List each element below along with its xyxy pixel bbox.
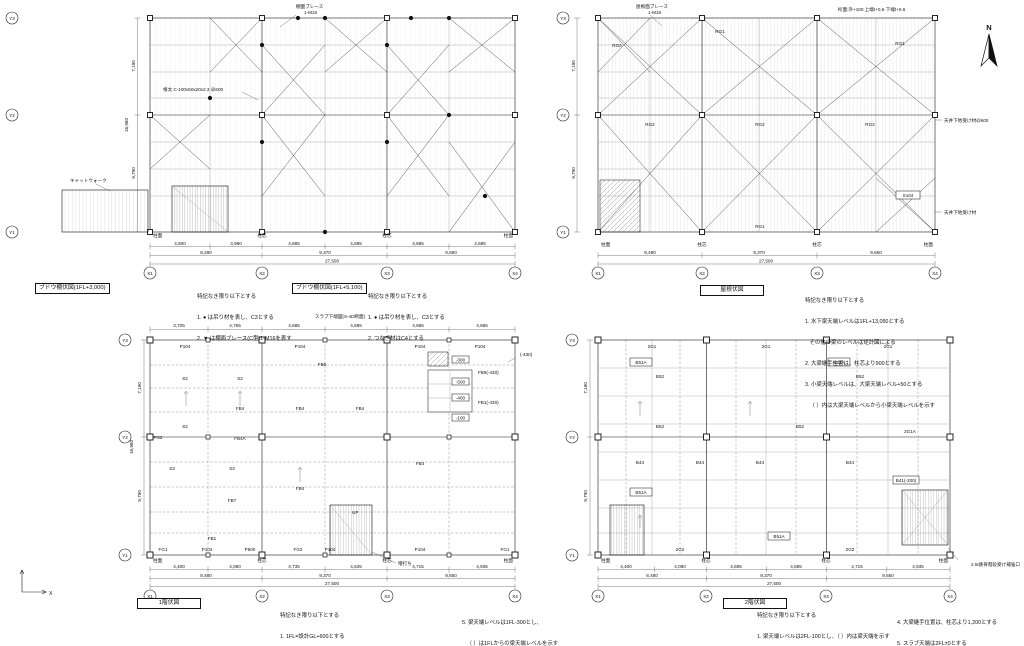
dim-value: 4,685 [790,564,802,569]
grid-bubble-label: X2 [703,594,709,599]
stair-hatch [600,180,640,232]
dim-total: 27,500 [325,581,339,586]
col-center-label: 柱芯 [382,232,392,239]
note-line: 5. スラブ天端は2FL±0とする [897,641,1024,646]
dim-value: 9,790 [137,490,142,502]
dim-value: 4,685 [412,241,424,246]
stair-reinforce-callout: 2.5t鉄骨階段受け補強口 [948,548,1020,568]
col-center-label: 柱芯 [812,241,822,248]
beam-callout: B51A [773,534,785,539]
north-label: N [986,23,991,32]
dim-value: 9,370 [760,573,772,578]
notes-roof: 特記なき限り以下とする 1. 水下梁天端レベルは1FL+13,050とする その… [805,284,935,417]
dim-value: 7,190 [131,60,136,72]
stair-hatch [172,186,228,232]
grid-bubble-label: X3 [384,271,390,276]
beam-label: 2G1 [648,344,657,349]
title-roof: 屋根伏図 [700,285,764,296]
dimension-strings-bottom: 柱面 柱芯 柱芯 柱面 4,500 3,980 4,685 4,685 4,68… [150,232,515,267]
notes-floor1-a: 特記なき限り以下とする 1. 1FL=設計GL+600とする 2. スラブ符号は… [280,599,394,646]
col-center-label: 柱芯 [257,232,267,239]
dim-value: 4,080 [229,564,241,569]
grid-bubble-label: X3 [814,271,820,276]
note-line: その他の梁のレベルは矩計図による [805,340,935,347]
dim-value: 4,935 [476,564,488,569]
dim-value: 9,790 [131,167,136,179]
beam-label: RG3 [612,43,622,48]
note-line: 4. 大梁継手位置は、柱芯より1,200とする [897,620,1024,627]
brace-size-label: 1-M16 [304,10,317,15]
beam-label: FG1 [159,547,168,552]
beam-label: B44 [846,460,855,465]
catwalk-label: キャットウォーク [70,177,107,184]
grid-bubble-label: X1 [595,271,601,276]
col-center-label: 柱芯 [821,557,831,564]
stair-hatch [902,490,948,545]
dim-value: 8,480 [644,250,656,255]
dimension-strings-bottom: 柱面 柱芯 柱芯 柱面 8,480 9,370 9,650 27,500 [598,241,935,267]
note-line: 5. 梁天端レベルは1FL-300とし、 [462,620,558,627]
note-line: 3. 小梁天端レベルは、大梁天端レベル+50とする [805,382,935,389]
notes-floor2-a: 特記なき限り以下とする 1. 梁天端レベルは2FL-100とし、（ ）内は梁天端… [757,599,890,646]
plan-floor2: 2G1 2G1 2G1 B52 B52 B52 B52 B44 B44 B44 … [566,334,1020,602]
ceiling-label: 天井下地受け材 [944,209,977,216]
col-center-label: 柱芯 [697,241,707,248]
grid-bubble-label: X2 [259,594,265,599]
level-callout: -300 [456,358,466,363]
pile-label: P500 [245,547,256,552]
notes-floor1-b: 5. 梁天端レベルは1FL-300とし、 （ ）は1FLからの梁天端レベルを示す… [462,606,558,646]
grid-bubble-label: Y2 [569,435,575,440]
brace-label: 棚面ブレース [296,3,324,10]
ceiling-label: 天井下地受け材@600 [944,117,989,124]
notes-head: 特記なき限り以下とする [757,613,890,620]
dim-value: 4,715 [412,564,424,569]
dimension-strings-bottom: 柱面 柱芯 柱芯 柱面 増打ち 4,400 4,080 4,735 4,635 … [150,552,515,590]
note-line: 1. ● は吊り材を表し、C3とする [368,315,445,322]
notes-head: 特記なき限り以下とする [280,613,394,620]
col-face-label: 柱面 [504,232,514,239]
beam-label: FB4 [356,406,365,411]
dim-value: 4,685 [474,241,486,246]
slab-label: S3 [229,466,235,471]
plan-floor1: S2 S2 S2 S3 S3 FB4 FB4 FB4 FB4 FB4 FB4A … [119,313,533,602]
dim-value: 8,480 [200,573,212,578]
masimashi-callout: 増打ち [398,560,412,567]
beam-label: RG1 [715,29,725,34]
beam-callout: B51A [635,360,647,365]
grid-bubble-label: X4 [947,594,953,599]
plan-roof: RG1 RG1 RG3 RG2 RG2 RG2 RG1 屋根面ブレース 1-M1… [557,3,997,279]
grid-bubble-label: X4 [512,594,518,599]
col-face-label: 柱面 [924,241,934,248]
beam-label: FB4 [296,406,305,411]
grid-bubble-label: X1 [147,271,153,276]
stair-reinforce-label: 2.5t鉄骨階段受け補強口 [971,561,1020,568]
dim-value: 9,650 [882,573,894,578]
level-callout: (-430) [520,352,533,357]
dim-value: 8,480 [200,250,212,255]
grid-bubble-label: X2 [699,271,705,276]
dim-value: 4,500 [174,241,186,246]
beam-callout: B51A [635,490,647,495]
col-face-label: 柱面 [153,232,163,239]
dim-value: 3,980 [230,241,242,246]
catwalk: キャットウォーク [62,177,148,232]
beam-label: B44 [696,460,705,465]
slab-detail-label: スラブ下端図(S-4D断面) [315,313,366,320]
title-trellis-lower: ブドウ棚伏図(1FL+3,000) [35,283,110,294]
beam-label: B52 [656,374,665,379]
beam-label: RG2 [755,122,765,127]
dim-value: 9,650 [870,250,882,255]
joist-label: 根太 C-100x50x20x2.3 @600 [163,86,224,93]
beam-label: S104 [903,193,914,198]
dim-value: 4,935 [912,564,924,569]
note-line: 2. つなぎ材はC4とする [368,336,445,343]
slab-label: S2 [182,424,188,429]
plan-trellis: キャットウォーク 棚面ブレース 1-M16 根太 C-100x50x20x2.3… [6,3,521,279]
dim-value: 9,790 [583,490,588,502]
beam-level-callout: FB5(-430) [478,370,499,375]
grid-bubble-label: Y2 [122,435,128,440]
col-face-label: 柱面 [153,557,163,564]
north-arrow-icon: N [981,23,997,66]
beam-label: FG2 [154,435,163,440]
beam-label: 2G1 [762,344,771,349]
level-callout: -400 [456,396,466,401]
note-line: （ ）は1FLからの梁天端レベルを示す [462,641,558,646]
beam-label: FB1 [208,536,217,541]
beam-label: RG2 [645,122,655,127]
dim-value: 4,685 [730,564,742,569]
grid-bubble-label: Y3 [122,338,128,343]
notes-floor2-b: 4. 大梁継手位置は、柱芯より1,200とする 5. スラブ天端は2FL±0とす… [897,606,1024,646]
dim-value: 4,735 [288,564,300,569]
notes-head: 特記なき限り以下とする [805,298,935,305]
grid-bubble-label: Y2 [9,113,15,118]
notes-head: 特記なき限り以下とする [368,294,445,301]
dim-value: 4,080 [674,564,686,569]
notes-head: 特記なき限り以下とする [197,294,292,301]
beam-label: RG1 [755,224,765,229]
slab-label: S2 [182,376,188,381]
note-line: （ ）内は大梁天端レベルから小梁天端レベルを示す [805,403,935,410]
dimension-strings-left: 7,190 9,790 16,980 [129,340,147,555]
dim-total: 16,980 [129,440,134,454]
roof-spec-note: 桁面:外+100 上端t+0.6·下端t+0.6 [838,6,906,13]
dimension-strings-left: 7,190 9,790 [583,340,593,555]
dim-value: 9,790 [571,167,576,179]
beam-label: 2G2 [846,547,855,552]
note-line: 1. 水下梁天端レベルは1FL+13,050とする [805,319,935,326]
beam-label: FB7 [228,498,237,503]
dim-value: 4,400 [620,564,632,569]
dim-total: 27,500 [325,259,339,264]
grid-bubble-label: X4 [932,271,938,276]
beam-label: FB6 [318,362,327,367]
beam-label: RG2 [865,122,875,127]
beam-label: B44 [636,460,645,465]
dim-value: 8,480 [646,573,658,578]
grid-bubble-label: X4 [512,271,518,276]
dim-value: 4,685 [288,241,300,246]
dim-value: 9,370 [753,250,765,255]
dim-value: 4,635 [350,564,362,569]
pile-label: P104 [202,547,213,552]
note-line: 2. ▼ は棚面ブレース(C型)1-M16を表す [197,336,292,343]
brace-size-label: 1-M16 [648,10,661,15]
notes-trellis-lower: 特記なき限り以下とする 1. ● は吊り材を表し、C3とする 2. ▼ は棚面ブ… [197,280,292,350]
beam-callout: B41(-200) [896,478,917,483]
grid-bubble-label: X1 [595,594,601,599]
beam-label: B52 [656,424,665,429]
dim-value: 9,650 [445,573,457,578]
grid-bubble-label: Y3 [9,16,15,21]
level-callout: -500 [456,380,466,385]
note-line: 1. ● は吊り材を表し、C3とする [197,315,292,322]
beam-level-callout: FB1(-430) [478,400,499,405]
beam-label: B52 [796,424,805,429]
dim-value: 7,190 [583,382,588,394]
beam-label: 2G2 [676,547,685,552]
dim-value: 4,685 [350,323,362,328]
grid-bubble-label: Y1 [9,230,15,235]
dimension-strings-left: 7,190 9,790 [571,18,580,232]
level-callout: -100 [456,416,466,421]
col-face-label: 柱面 [504,557,514,564]
up-label: UP [352,510,358,515]
beam-label: FB4A [234,436,246,441]
grid-bubble-label: Y1 [122,553,128,558]
pile-label: P104 [475,344,486,349]
pile-label: P104 [295,344,306,349]
col-center-label: 柱芯 [257,557,267,564]
dim-value: 4,685 [350,241,362,246]
drawing-sheet: キャットウォーク 棚面ブレース 1-M16 根太 C-100x50x20x2.3… [0,0,1024,646]
beam-label: FB4 [416,461,425,466]
dim-total: 16,980 [124,118,129,132]
note-line: 2. 大梁継手位置は、柱芯より900とする [805,361,935,368]
title-floor1: 1階伏図 [137,598,201,609]
axis-x-label: X [49,591,53,597]
pile-label: P104 [415,547,426,552]
notes-trellis-upper: 特記なき限り以下とする 1. ● は吊り材を表し、C3とする 2. つなぎ材はC… [368,280,445,350]
dim-value: 9,650 [445,250,457,255]
dim-value: 9,370 [319,250,331,255]
dim-value: 4,685 [476,323,488,328]
dim-total: 27,500 [767,581,781,586]
beam-label: FG1 [501,547,510,552]
grid-bubble-label: Y3 [560,16,566,21]
axis-marker-icon: X [20,570,53,597]
dim-value: 3,705 [173,323,185,328]
dim-value: 4,715 [851,564,863,569]
col-face-label: 柱面 [601,557,611,564]
dim-value: 7,190 [137,382,142,394]
grid-bubble-label: Y1 [569,553,575,558]
beam-label: 2G1A [904,429,917,434]
grid-bubble-label: X2 [259,271,265,276]
stair2 [610,505,644,555]
dim-total: 27,500 [759,259,773,264]
dimension-strings-bottom: 柱面 柱芯 柱芯 柱面 4,400 4,080 4,685 4,685 4,71… [598,557,950,590]
col-center-label: 柱芯 [701,557,711,564]
grid-bubble-label: Y3 [569,338,575,343]
beam-label: RG1 [895,41,905,46]
slab-label: S3 [169,466,175,471]
dim-value: 4,400 [173,564,185,569]
title-trellis-upper: ブドウ棚伏図(1FL+5,100) [292,283,367,294]
pile-label: P104 [180,344,191,349]
grid-bubble-label: Y1 [560,230,566,235]
slab-label: S2 [237,376,243,381]
brace-label: 屋根面ブレース [636,3,668,10]
note-line: 1. 梁天端レベルは2FL-100とし、（ ）内は梁天端を示す [757,634,890,641]
beam-label: FG2 [294,547,303,552]
stair-hatch: UP [330,505,372,555]
beam-label: B44 [756,460,765,465]
note-line: 1. 1FL=設計GL+600とする [280,634,394,641]
beam-label: FB4 [236,406,245,411]
dim-value: 7,190 [571,60,576,72]
col-face-label: 柱面 [939,557,949,564]
beam-label: FB4 [296,486,305,491]
grid-bubble-label: Y2 [560,113,566,118]
dim-value: 9,370 [319,573,331,578]
col-face-label: 柱面 [601,241,611,248]
